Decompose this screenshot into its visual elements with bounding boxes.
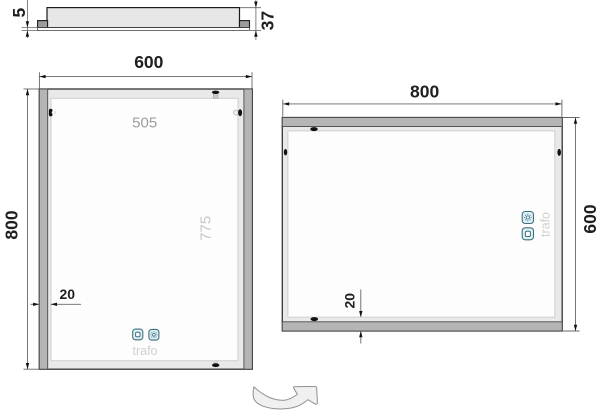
svg-text:20: 20 — [60, 286, 76, 302]
svg-text:775: 775 — [198, 216, 215, 241]
svg-text:trafo: trafo — [132, 344, 157, 358]
svg-text:600: 600 — [580, 204, 600, 233]
svg-text:505: 505 — [132, 114, 157, 131]
svg-text:600: 600 — [134, 52, 163, 72]
svg-text:800: 800 — [410, 82, 439, 102]
svg-text:37: 37 — [257, 11, 277, 30]
svg-text:5: 5 — [9, 7, 29, 17]
svg-text:20: 20 — [342, 293, 358, 309]
svg-text:trafo: trafo — [539, 212, 553, 237]
svg-text:800: 800 — [1, 210, 21, 239]
